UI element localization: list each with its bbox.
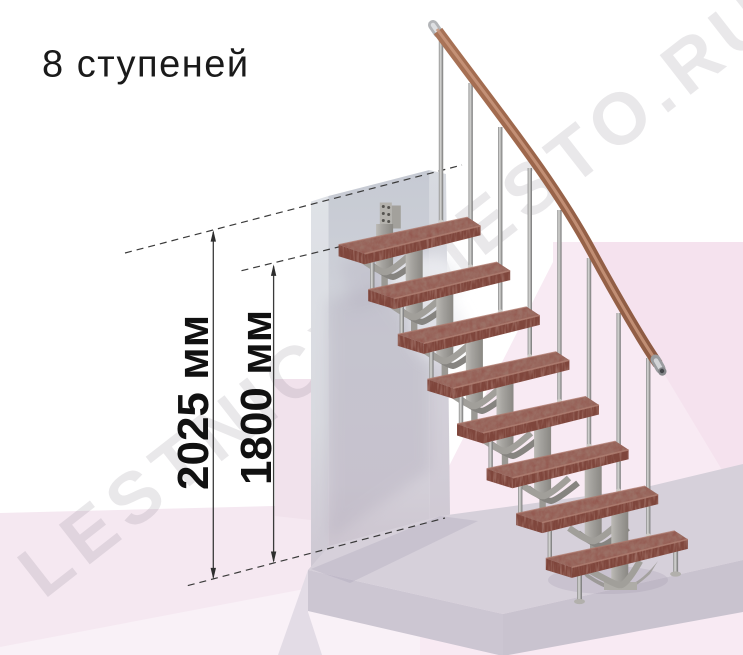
svg-text:2025 мм: 2025 мм [169,315,218,490]
svg-text:8 ступеней: 8 ступеней [42,44,250,86]
svg-text:1800 мм: 1800 мм [232,310,281,485]
